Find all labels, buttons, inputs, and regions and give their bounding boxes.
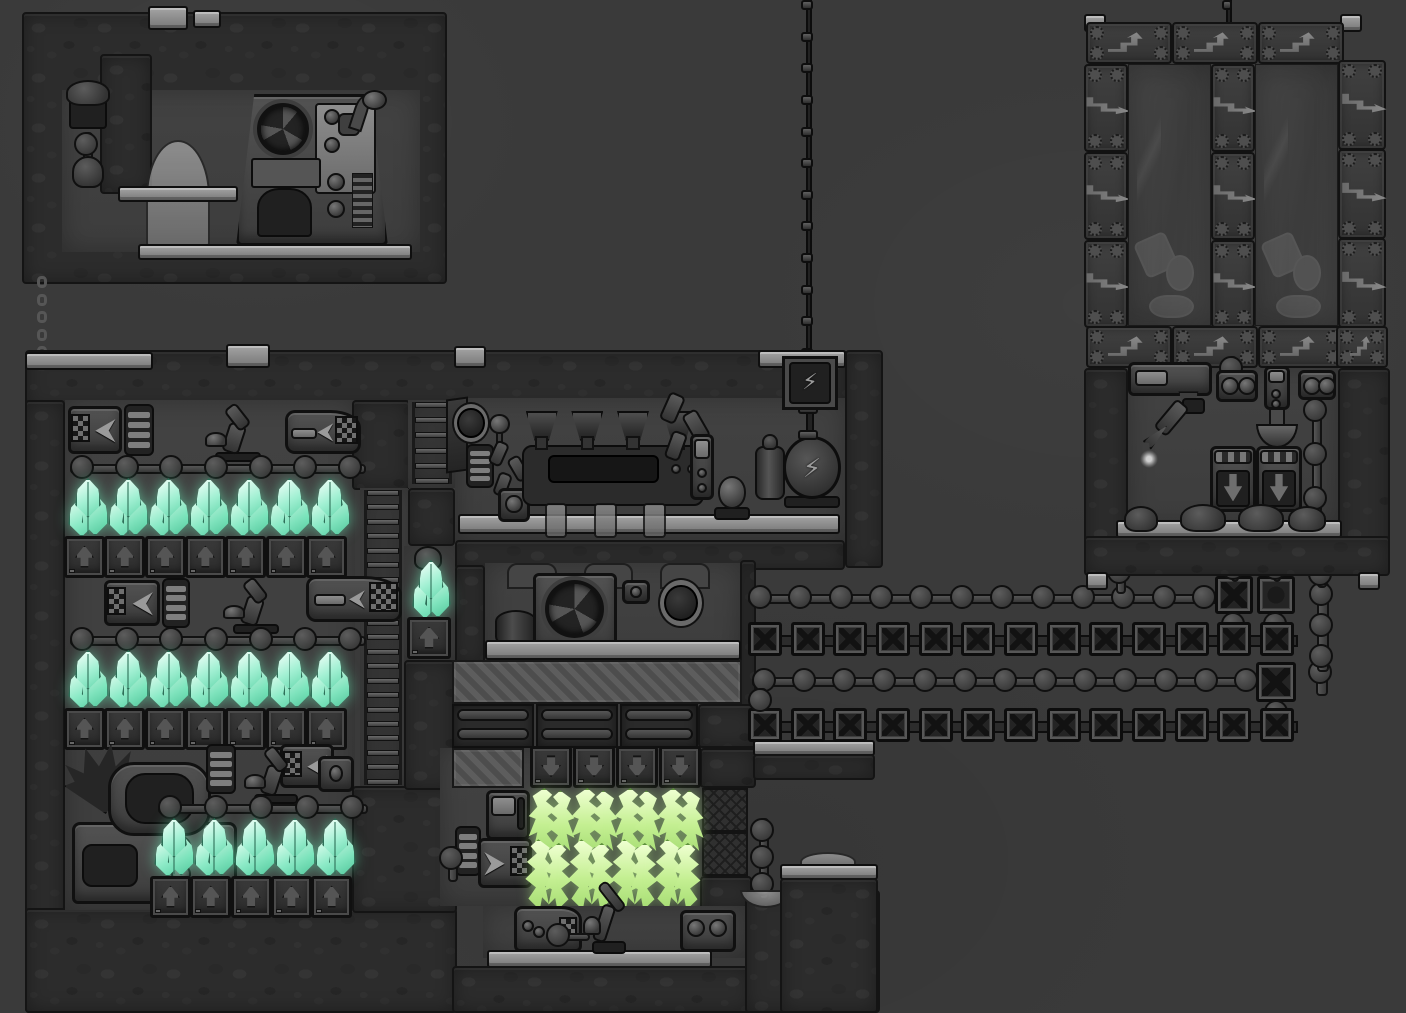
farm-tile-row1[interactable] xyxy=(145,536,186,578)
storage-bay[interactable] xyxy=(620,704,698,748)
farm-tile-row1[interactable] xyxy=(225,536,266,578)
floor-pipe-stub[interactable] xyxy=(546,926,586,944)
conveyor-rail-lower[interactable] xyxy=(748,706,1294,744)
gas-shutoff[interactable] xyxy=(1216,370,1258,402)
upper-room-roof-tab xyxy=(193,10,221,28)
ceiling-farm-tile[interactable] xyxy=(616,746,658,788)
conveyor-junction-x[interactable] xyxy=(1256,662,1296,702)
door-motor-icon xyxy=(1082,274,1129,295)
farm-conveyor-loader-left[interactable]: ⮜ xyxy=(104,580,160,626)
arrow-left-icon: ⮜ xyxy=(342,580,371,617)
debris-pile[interactable] xyxy=(1238,504,1284,532)
arrow-right-icon: ⮞ xyxy=(481,843,508,883)
debris-pile[interactable] xyxy=(1288,506,1326,532)
farm-tile-row3[interactable] xyxy=(190,876,231,918)
storage-icon xyxy=(335,416,358,444)
door-motor-icon xyxy=(1209,274,1256,295)
farm-conveyor-loader[interactable]: ⮜ xyxy=(285,410,361,454)
upper-room-roof-tab xyxy=(148,6,188,30)
loader-pipe-stub[interactable] xyxy=(442,846,460,878)
storage-icon xyxy=(71,414,89,443)
mech-door-tile[interactable] xyxy=(1258,22,1344,64)
mech-door-tile[interactable] xyxy=(1084,240,1128,328)
arrow-left-icon: ⮜ xyxy=(92,411,119,449)
door-motor-icon xyxy=(1194,32,1237,53)
storage-icon xyxy=(369,582,398,611)
grow-arrow-icon xyxy=(236,545,256,567)
door-motor-icon xyxy=(1280,32,1323,53)
farm-tile-row3[interactable] xyxy=(311,876,352,918)
grow-arrow-icon xyxy=(196,545,216,567)
antenna-wire xyxy=(1222,0,1232,24)
mech-door-tile[interactable] xyxy=(1338,60,1386,150)
farm-tile-single[interactable] xyxy=(407,617,451,659)
farm-tile-row1[interactable] xyxy=(64,536,105,578)
conveyor-rail-upper[interactable] xyxy=(748,620,1294,658)
fan-icon xyxy=(545,580,604,638)
farm-battery[interactable] xyxy=(206,744,236,794)
upper-room-ledge xyxy=(118,186,238,202)
door-motor-icon xyxy=(1209,98,1256,119)
base-bottom-rock xyxy=(25,908,457,1013)
base-top-cap-left xyxy=(25,352,153,370)
generator-room-right-rock xyxy=(845,350,883,568)
small-pump[interactable] xyxy=(714,476,750,520)
floor-bracket-tab xyxy=(1086,572,1108,590)
door-motor-icon xyxy=(1082,98,1129,119)
grill-gooseneck-vent[interactable] xyxy=(338,90,392,148)
power-bolt-icon: ⚡ xyxy=(782,361,838,404)
lower-ledge-rock xyxy=(780,878,878,1013)
pocket-upper-rock xyxy=(408,488,455,546)
mint-plant-single[interactable] xyxy=(408,560,454,620)
ladder-main[interactable] xyxy=(364,490,402,785)
grow-arrow-icon xyxy=(236,717,256,739)
farm-tile-row2[interactable] xyxy=(104,708,145,750)
conveyor-chute[interactable] xyxy=(1210,446,1256,512)
switch-panel[interactable] xyxy=(690,434,714,500)
storage-bay[interactable] xyxy=(536,704,618,748)
suction-cup-icon xyxy=(583,916,600,935)
room-pipe-column[interactable] xyxy=(1306,398,1324,510)
farm-battery[interactable] xyxy=(162,578,190,628)
grow-arrow-icon xyxy=(282,885,302,907)
arrow-left-icon: ⮜ xyxy=(129,585,157,622)
round-vent-porthole[interactable] xyxy=(658,578,704,628)
ghost-blueprint-machine[interactable] xyxy=(1262,232,1332,322)
suction-cup-icon xyxy=(205,432,228,447)
grow-arrow-icon xyxy=(541,755,561,777)
mining-spark xyxy=(1140,450,1158,468)
grow-arrow-icon xyxy=(115,717,135,739)
mech-door-tile[interactable] xyxy=(1084,152,1128,240)
door-motor-icon xyxy=(1338,183,1386,206)
power-transformer[interactable]: ⚡ xyxy=(780,436,844,508)
mint-plant-row2[interactable] xyxy=(306,650,354,710)
ceiling-farm-tile[interactable] xyxy=(530,746,572,788)
power-bolt-icon: ⚡ xyxy=(780,440,844,498)
ceiling-farm-tile[interactable] xyxy=(659,746,701,788)
irrigation-pipe-row3[interactable] xyxy=(158,794,364,820)
storage-bay[interactable] xyxy=(452,704,534,748)
pincha-pepperplant[interactable] xyxy=(653,788,709,910)
floor-bracket-tab xyxy=(1358,572,1380,590)
door-motor-icon xyxy=(1108,336,1151,357)
metal-tile-single[interactable] xyxy=(452,748,524,788)
mint-plant-row1[interactable] xyxy=(306,478,354,538)
small-device[interactable] xyxy=(318,756,354,792)
fanroom-left-rock xyxy=(455,565,485,665)
door-motor-icon xyxy=(1338,272,1386,295)
grow-arrow-icon xyxy=(316,545,336,567)
right-slab-rock xyxy=(753,754,875,780)
bottom-room-under-rock xyxy=(452,966,752,1013)
door-motor-icon xyxy=(1209,186,1256,207)
grow-arrow-icon xyxy=(627,755,647,777)
hanging-chain xyxy=(34,276,50,358)
irrigation-pipe-row1[interactable] xyxy=(70,454,362,480)
grow-arrow-icon xyxy=(322,885,342,907)
wall-sensor-box[interactable] xyxy=(622,580,650,604)
grow-arrow-icon xyxy=(161,885,181,907)
grow-arrow-icon xyxy=(155,717,175,739)
grow-arrow-icon xyxy=(241,885,261,907)
heavi-watt-joint-plate[interactable]: ⚡ xyxy=(782,356,838,410)
ceiling-farm-tile[interactable] xyxy=(573,746,615,788)
farm-tile-row3[interactable] xyxy=(271,876,312,918)
grow-arrow-icon xyxy=(115,545,135,567)
ghost-blueprint-machine[interactable] xyxy=(1135,232,1205,322)
mech-door-tile[interactable] xyxy=(1172,22,1258,64)
vent-control-box[interactable] xyxy=(1264,366,1290,410)
upper-room-floor-cap xyxy=(138,244,412,260)
mech-door-tile[interactable] xyxy=(1338,149,1386,239)
farm-conveyor-loader[interactable]: ⮜ xyxy=(306,576,402,622)
base-top-tab xyxy=(226,344,270,368)
door-motor-icon xyxy=(1280,336,1323,357)
farm-tile-row2[interactable] xyxy=(145,708,186,750)
pincha-room-top-right-rock xyxy=(700,748,756,788)
grow-arrow-icon xyxy=(75,545,95,567)
robo-miner-arm[interactable] xyxy=(1150,398,1208,460)
grow-arrow-icon xyxy=(276,545,296,567)
porthole-window xyxy=(452,402,490,444)
mech-door-tile[interactable] xyxy=(1211,240,1255,328)
liquid-drain-machine[interactable] xyxy=(64,80,112,134)
drain-pipe-descending[interactable] xyxy=(752,818,772,896)
debris-pile[interactable] xyxy=(1124,506,1158,532)
farm-tile-row3[interactable] xyxy=(150,876,191,918)
auto-sweeper-arm[interactable] xyxy=(580,880,638,954)
fan-icon xyxy=(257,103,309,155)
farm-conveyor-loader-left[interactable]: ⮜ xyxy=(68,406,122,454)
mech-door-tile[interactable] xyxy=(1211,64,1255,152)
door-motor-icon xyxy=(1338,94,1386,117)
farm-tile-row3[interactable] xyxy=(231,876,272,918)
grow-arrow-icon xyxy=(418,626,439,648)
liquid-pipe-run-lower[interactable] xyxy=(752,666,1258,694)
liquid-pipe-run-top[interactable] xyxy=(748,584,1216,610)
mech-door-tile-corner[interactable] xyxy=(1336,326,1388,368)
gas-vent-trumpet[interactable] xyxy=(1256,408,1298,448)
game-viewport: ⚡ ⚡ ⮞ ⮜ ⮜ ⮜ ⮜ xyxy=(0,0,1406,1013)
farm-tile-row1[interactable] xyxy=(185,536,226,578)
farm-tile-row1[interactable] xyxy=(104,536,145,578)
mech-door-tile[interactable] xyxy=(1338,238,1386,328)
valve-ball[interactable] xyxy=(72,156,104,188)
door-motor-icon xyxy=(1194,336,1237,357)
mech-door-tile[interactable] xyxy=(1084,64,1128,152)
door-motor-icon xyxy=(1082,186,1129,207)
debris-pile[interactable] xyxy=(1180,504,1226,532)
grow-arrow-icon xyxy=(670,755,690,777)
mech-door-tile[interactable] xyxy=(1086,22,1172,64)
right-pipe-column[interactable] xyxy=(1310,582,1332,668)
conveyor-chute[interactable] xyxy=(1256,446,1302,512)
mint-plant-row3[interactable] xyxy=(311,818,359,878)
mech-door-tile[interactable] xyxy=(1258,326,1344,368)
farm-tile-row2[interactable] xyxy=(64,708,105,750)
suction-cup-icon xyxy=(244,774,266,789)
gas-shutoff[interactable] xyxy=(680,910,736,952)
heavi-watt-wire[interactable] xyxy=(801,0,813,358)
pipe-left-elbow[interactable] xyxy=(752,688,768,706)
grow-arrow-icon xyxy=(155,545,175,567)
farm-tile-row1[interactable] xyxy=(306,536,347,578)
grow-arrow-icon xyxy=(201,885,221,907)
right-room-floor-rock xyxy=(1084,536,1390,576)
farm-tile-row1[interactable] xyxy=(266,536,307,578)
farm-battery[interactable] xyxy=(124,404,154,456)
gas-shutoff[interactable] xyxy=(1298,370,1336,400)
mech-door-tile[interactable] xyxy=(1211,152,1255,240)
grow-arrow-icon xyxy=(75,717,95,739)
battery[interactable] xyxy=(466,444,494,488)
fan-room-floor-cap xyxy=(485,640,741,660)
grow-arrow-icon xyxy=(196,717,216,739)
door-motor-icon xyxy=(1108,32,1151,53)
storage-icon xyxy=(107,587,126,615)
grow-arrow-icon xyxy=(316,717,336,739)
grow-arrow-icon xyxy=(276,717,296,739)
base-top-tab xyxy=(454,346,486,368)
metal-tile-band[interactable] xyxy=(452,660,742,704)
irrigation-pipe-row2[interactable] xyxy=(70,626,362,652)
arrow-left-icon: ⮜ xyxy=(314,414,337,449)
suction-cup-icon xyxy=(223,605,246,620)
grow-arrow-icon xyxy=(584,755,604,777)
